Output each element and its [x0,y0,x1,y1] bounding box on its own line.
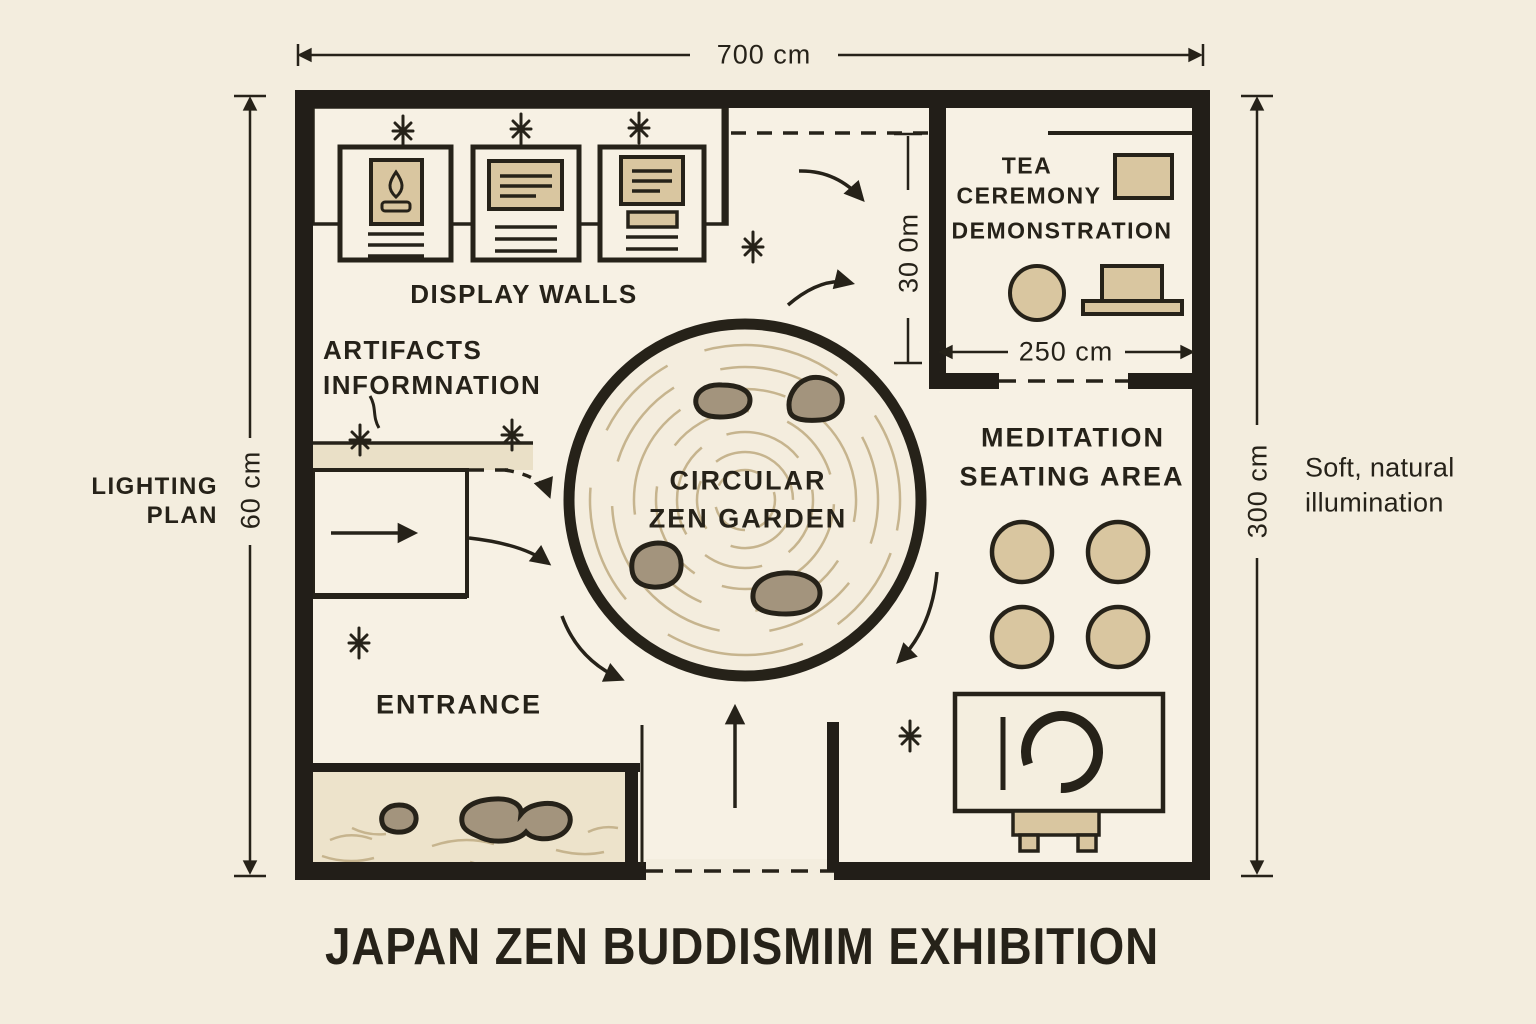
dimension-label-height-right: 300 cm [1245,444,1272,539]
meditation-label: MEDITATION [981,425,1165,452]
corridor-right-wall [827,722,839,871]
candle-base-icon [382,202,410,211]
entrance-rock-garden [306,763,640,869]
zen-garden-label: ZEN GARDEN [649,506,848,533]
meditation-cushion [992,607,1052,667]
tea-room-bottom-wall [929,373,999,389]
illumination-note: illumination [1305,490,1444,517]
tea-ceremony-label: CEREMONY [957,185,1102,208]
artifacts-info-label: INFORMNATION [323,372,541,398]
tea-room-left-wall [929,90,946,389]
lighting-plan-label: LIGHTING [91,475,218,499]
meditation-label: SEATING AREA [959,464,1184,491]
floor-plan-canvas: 700 cm 60 cm 300 cm 30 0m 250 cm DISPLAY… [0,0,1536,1024]
dimension-label-tea-height: 30 0m [896,213,923,293]
display-frame-info-panel [600,147,704,260]
garden-rock [632,543,681,587]
entrance-rock [382,805,416,832]
display-frame-candle [340,147,451,260]
illumination-note: Soft, natural [1305,455,1455,482]
dimension-label-tea-width: 250 cm [1019,339,1114,366]
garden-rock [696,385,750,417]
artifacts-info-label: ARTIFACTS [323,337,482,363]
entrance-rock [462,799,570,841]
tea-ceremony-label: TEA [1002,155,1053,178]
lighting-plan-label: PLAN [147,504,218,528]
tea-shelf [1115,155,1172,198]
meditation-cushion [1088,607,1148,667]
entrance-label: ENTRANCE [376,692,542,719]
meditation-cushion [1088,522,1148,582]
garden-rock [789,377,842,420]
tea-table-top [1102,266,1162,303]
page-title: JAPAN ZEN BUDDISMIM EXHIBITION [325,921,1159,973]
tea-cushion [1010,266,1064,320]
display-frame-text-panel [473,147,579,260]
meditation-cushion [992,522,1052,582]
dimension-label-height-left: 60 cm [238,451,265,530]
zen-garden-label: CIRCULAR [670,468,827,495]
garden-rock [753,573,820,614]
display-walls-label: DISPLAY WALLS [410,281,638,307]
tea-room-bottom-wall [1128,373,1208,389]
tea-ceremony-label: DEMONSTRATION [952,220,1173,243]
tea-table-base [1083,301,1182,314]
dimension-label-width: 700 cm [717,42,812,69]
display-stand [1013,811,1099,835]
